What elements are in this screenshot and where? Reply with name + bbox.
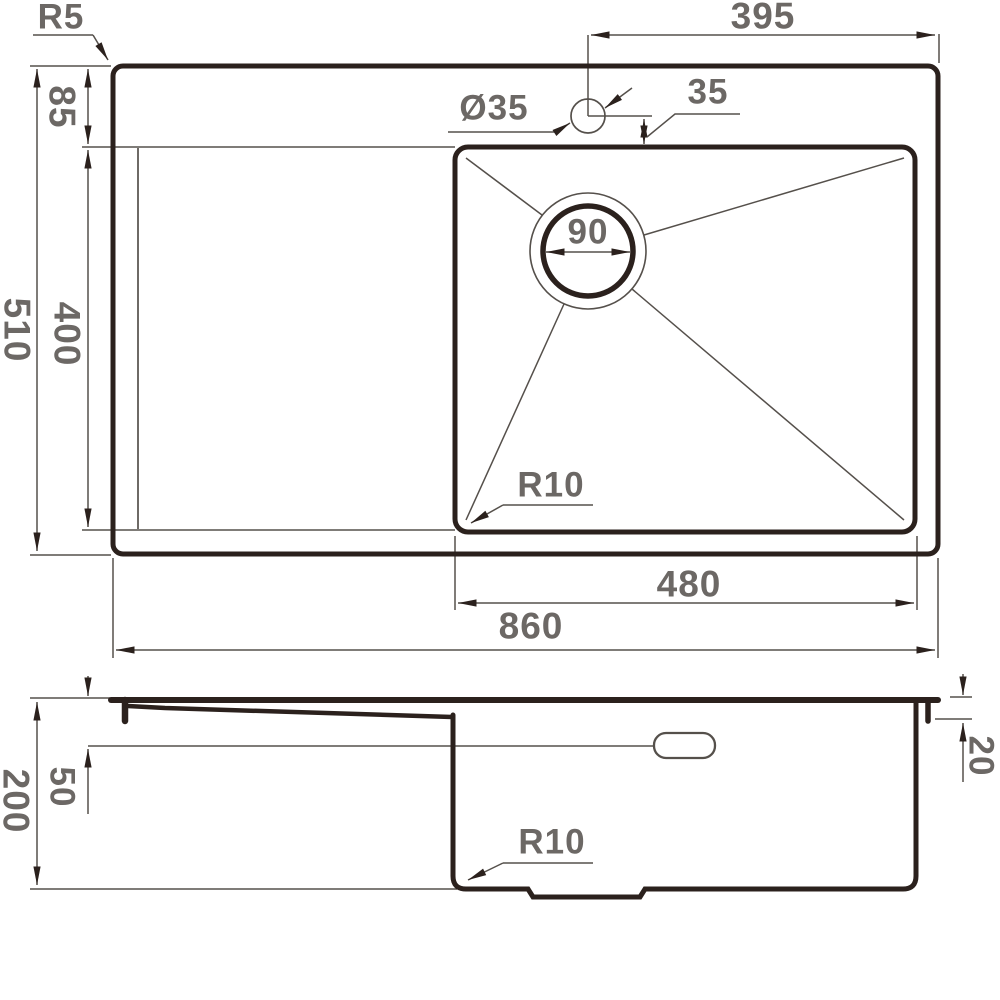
dim-label-rim-lip-depth: 20 — [964, 736, 999, 777]
sink-technical-drawing: R5 395 85 Ø35 35 90 510 400 R10 480 860 … — [0, 0, 1000, 1000]
side-view-geometry — [30, 674, 972, 897]
top-view-geometry — [30, 34, 939, 658]
dim-label-overall-width: 860 — [499, 608, 564, 645]
drawing-geometry — [0, 0, 1000, 1000]
dim-label-bowl-corner-radius: R10 — [517, 468, 584, 503]
dim-label-drain-diameter: 90 — [568, 215, 609, 250]
drainboard-profile — [128, 706, 452, 717]
dim-label-bowl-depth: 400 — [49, 302, 86, 367]
bowl-profile — [453, 701, 916, 897]
dim-label-overflow-offset: 50 — [45, 767, 80, 808]
dim-label-corner-radius: R5 — [38, 0, 85, 35]
dim-label-faucet-to-bowl-offset: 35 — [688, 75, 729, 110]
dim-label-bottom-corner-radius: R10 — [518, 825, 585, 860]
dim-label-overall-height: 200 — [0, 769, 35, 834]
dim-label-rim-to-bowl-gap: 85 — [44, 85, 81, 128]
dim-label-overall-depth: 510 — [0, 298, 36, 363]
dim-label-faucet-offset-right: 395 — [731, 0, 796, 35]
dim-label-faucet-hole-diameter: Ø35 — [459, 91, 528, 126]
dim-label-bowl-width: 480 — [657, 566, 722, 603]
overflow-slot — [654, 733, 715, 758]
